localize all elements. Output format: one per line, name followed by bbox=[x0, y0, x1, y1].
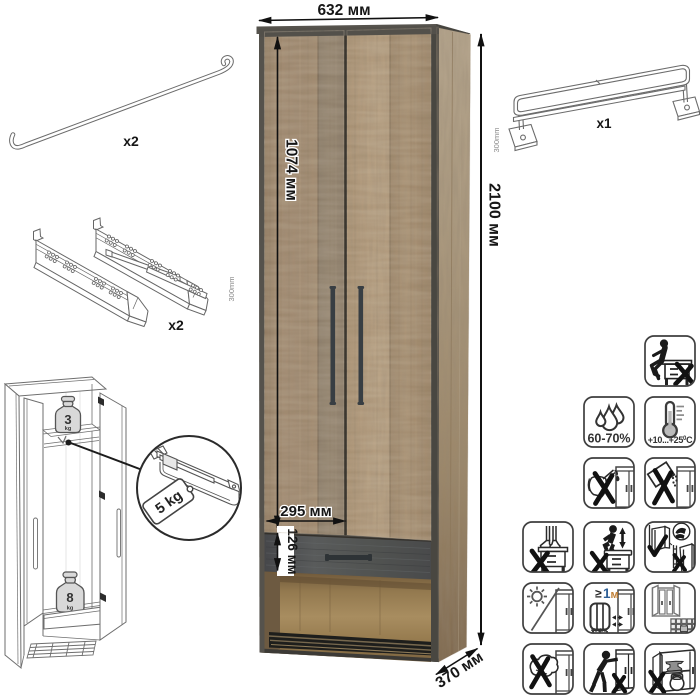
svg-text:2100 мм: 2100 мм bbox=[486, 183, 503, 247]
svg-text:126 мм: 126 мм bbox=[285, 528, 300, 574]
svg-text:60-70%: 60-70% bbox=[587, 432, 630, 446]
svg-text:295 мм: 295 мм bbox=[280, 503, 331, 520]
svg-text:300mm: 300mm bbox=[227, 276, 236, 301]
svg-text:1074 мм: 1074 мм bbox=[283, 139, 300, 201]
svg-text:kg: kg bbox=[65, 426, 71, 432]
svg-text:x2: x2 bbox=[123, 133, 139, 149]
svg-text:632 мм: 632 мм bbox=[317, 2, 370, 19]
svg-text:300mm: 300mm bbox=[492, 127, 501, 152]
svg-text:3: 3 bbox=[64, 412, 71, 427]
svg-text:8: 8 bbox=[66, 590, 73, 605]
svg-text:x2: x2 bbox=[168, 317, 184, 333]
svg-text:kg: kg bbox=[67, 606, 73, 612]
svg-text:+10...+250C: +10...+250C bbox=[648, 435, 693, 445]
svg-text:≥: ≥ bbox=[595, 587, 602, 601]
svg-text:1м: 1м bbox=[603, 586, 619, 601]
svg-text:x1: x1 bbox=[596, 116, 612, 131]
